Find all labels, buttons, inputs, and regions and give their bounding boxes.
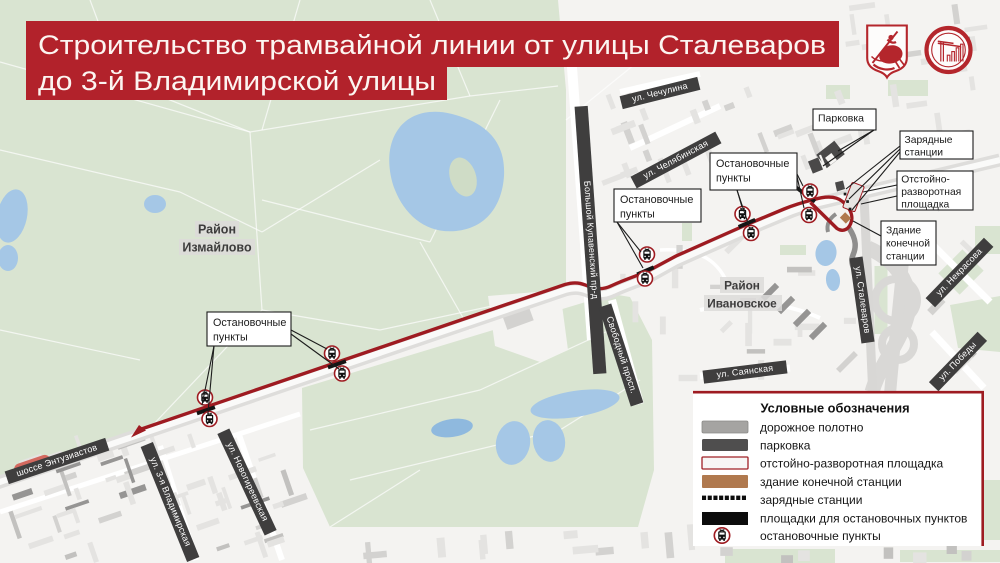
svg-text:Условные обозначения: Условные обозначения xyxy=(760,401,909,416)
svg-text:конечной: конечной xyxy=(886,238,930,249)
svg-text:пункты: пункты xyxy=(620,208,655,220)
svg-text:Остановочные: Остановочные xyxy=(620,194,693,206)
svg-text:Остановочные: Остановочные xyxy=(716,158,789,170)
svg-text:пункты: пункты xyxy=(716,172,751,184)
svg-text:Остановочные: Остановочные xyxy=(213,317,286,329)
svg-text:зарядные станции: зарядные станции xyxy=(760,493,862,507)
svg-text:разворотная: разворотная xyxy=(901,187,961,198)
svg-text:дорожное полотно: дорожное полотно xyxy=(760,421,864,435)
svg-text:здание конечной станции: здание конечной станции xyxy=(760,475,902,489)
svg-text:Парковка: Парковка xyxy=(818,113,864,125)
svg-text:Район: Район xyxy=(198,223,236,237)
svg-text:остановочные пункты: остановочные пункты xyxy=(760,529,881,543)
svg-text:Измайлово: Измайлово xyxy=(182,241,252,255)
svg-text:Отстойно-: Отстойно- xyxy=(901,175,950,186)
svg-text:Ивановское: Ивановское xyxy=(707,297,777,311)
svg-text:пункты: пункты xyxy=(213,331,248,343)
svg-text:станции: станции xyxy=(905,148,944,159)
svg-text:площадки для остановочных пунк: площадки для остановочных пунктов xyxy=(760,512,967,526)
svg-text:парковка: парковка xyxy=(760,439,811,453)
svg-text:станции: станции xyxy=(886,251,925,262)
svg-text:Строительство трамвайной линии: Строительство трамвайной линии от улицы … xyxy=(38,30,826,60)
svg-text:площадка: площадка xyxy=(901,199,949,210)
svg-text:до 3-й Владимирской улицы: до 3-й Владимирской улицы xyxy=(38,66,436,96)
svg-text:Район: Район xyxy=(724,279,760,293)
svg-text:Здание: Здание xyxy=(886,225,921,236)
svg-text:отстойно-разворотная площадка: отстойно-разворотная площадка xyxy=(760,457,944,471)
svg-text:Зарядные: Зарядные xyxy=(905,135,953,146)
